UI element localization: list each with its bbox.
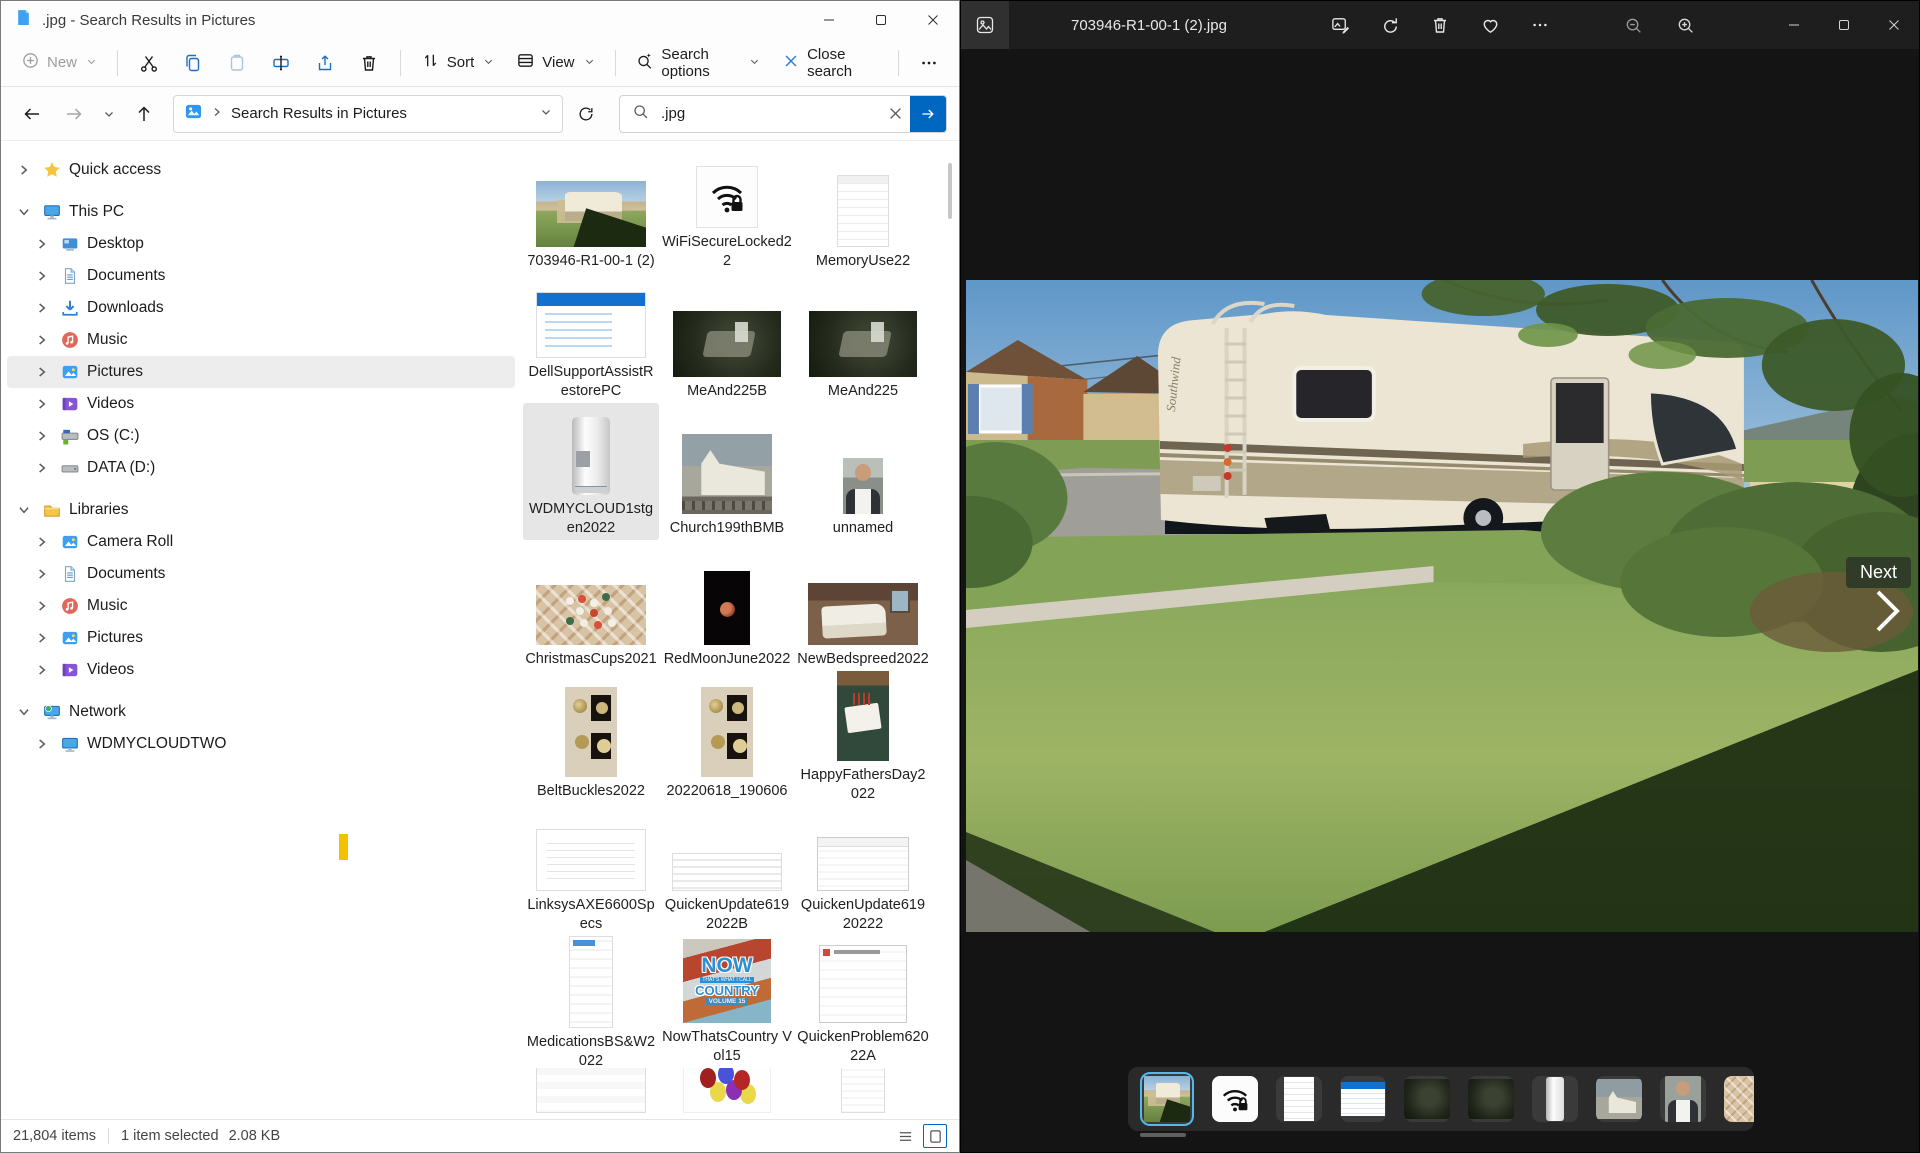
- file-tile[interactable]: 20220618_190606: [659, 671, 795, 803]
- next-tooltip: Next: [1846, 557, 1911, 588]
- sidebar-item-pictures[interactable]: Pictures: [7, 356, 515, 388]
- wifi-thumbnail: [696, 166, 758, 228]
- videos-icon: [59, 395, 81, 413]
- chevron-right-icon[interactable]: [31, 237, 53, 251]
- now-thumbnail: NOWTHAT'S WHAT I CALLCOUNTRYVOLUME 15: [683, 939, 771, 1023]
- file-tile[interactable]: QuickenUpdate61920222: [795, 803, 931, 936]
- photos-app-window: 703946-R1-00-1 (2).jpg: [960, 0, 1920, 1153]
- qrows-thumbnail: [672, 853, 782, 891]
- cups-thumbnail: [536, 585, 646, 645]
- filmstrip-thumbnail-doc[interactable]: [1276, 1076, 1322, 1122]
- delete-button[interactable]: [348, 44, 390, 82]
- drive-icon: [59, 459, 81, 477]
- file-tile-selected[interactable]: WDMYCLOUD1stgen2022: [523, 403, 659, 540]
- large-thumbnails-view-icon[interactable]: [923, 1124, 947, 1148]
- address-bar[interactable]: Search Results in Pictures: [173, 95, 563, 133]
- new-button[interactable]: New: [11, 44, 107, 82]
- file-list: 703946-R1-00-1 (2)WiFiSecureLocked22Memo…: [523, 147, 935, 1116]
- close-icon[interactable]: [907, 1, 959, 39]
- sidebar-item-pictures[interactable]: Pictures: [7, 622, 515, 654]
- moon-thumbnail: [704, 571, 750, 645]
- sidebar-item-label: This PC: [69, 203, 124, 221]
- videos-icon: [59, 661, 81, 679]
- wd-thumbnail: [572, 417, 610, 495]
- new-button-label: New: [47, 54, 77, 71]
- fathers-thumbnail: [837, 671, 889, 761]
- sidebar-item-network[interactable]: Network: [7, 696, 515, 728]
- back-icon[interactable]: [13, 95, 51, 133]
- clear-search-icon[interactable]: [880, 107, 910, 120]
- status-divider: [108, 1128, 109, 1144]
- file-name: WiFiSecureLocked22: [661, 233, 793, 271]
- file-name: MeAnd225: [797, 382, 929, 401]
- chevron-right-icon[interactable]: [31, 333, 53, 347]
- search-go-button[interactable]: [910, 95, 946, 133]
- filmstrip-thumbnail-dark[interactable]: [1468, 1076, 1514, 1122]
- items-count: 21,804 items: [13, 1128, 96, 1144]
- zoom-out-icon[interactable]: [1613, 5, 1653, 45]
- file-tile[interactable]: unnamed: [795, 403, 931, 540]
- toolbar-divider: [898, 50, 899, 76]
- yellow-caret-mark: [339, 834, 348, 860]
- sidebar-item-label: Videos: [87, 395, 134, 413]
- chevron-right-icon[interactable]: [13, 163, 35, 177]
- sidebar-item-label: Documents: [87, 267, 165, 285]
- driveos-icon: [59, 427, 81, 445]
- pictures-icon: [59, 629, 81, 647]
- file-tile[interactable]: ChristmasCups2021: [523, 540, 659, 671]
- file-name: NewBedspreed2022: [797, 650, 929, 669]
- receipt-thumbnail: [841, 1068, 885, 1113]
- church-thumbnail: [682, 434, 772, 514]
- rv-thumbnail: [536, 181, 646, 247]
- file-tile[interactable]: 703946-R1-00-1 (2): [523, 147, 659, 273]
- star-icon: [41, 161, 63, 179]
- up-icon[interactable]: [125, 95, 163, 133]
- file-name: QuickenUpdate61920222: [797, 896, 929, 934]
- file-tile[interactable]: WiFiSecureLocked22: [659, 147, 795, 273]
- sidebar-item-quick-access[interactable]: Quick access: [7, 154, 515, 186]
- explorer-command-bar: New Sort View Sea: [1, 39, 959, 87]
- sidebar-item-label: Music: [87, 597, 127, 615]
- photo-filename: 703946-R1-00-1 (2).jpg: [1071, 1, 1227, 49]
- man-thumbnail: [843, 458, 883, 514]
- sort-arrows-icon: [421, 51, 440, 74]
- chevron-down-icon: [483, 54, 494, 71]
- copy-button[interactable]: [172, 44, 214, 82]
- edit-image-icon[interactable]: [1320, 5, 1360, 45]
- pictures-icon: [59, 533, 81, 551]
- search-results-icon: [184, 102, 203, 126]
- sidebar-item-libraries[interactable]: Libraries: [7, 494, 515, 526]
- file-name: QuickenUpdate6192022B: [661, 896, 793, 934]
- delete-icon[interactable]: [1420, 5, 1460, 45]
- file-tile[interactable]: [795, 1068, 931, 1115]
- toolbar-divider: [117, 50, 118, 76]
- filmstrip-thumbnail-rv-selected[interactable]: [1140, 1072, 1194, 1126]
- chevron-right-icon[interactable]: [31, 269, 53, 283]
- file-grid-row: [523, 1068, 935, 1115]
- sidebar-item-music[interactable]: Music: [7, 324, 515, 356]
- downloads-icon: [59, 299, 81, 317]
- file-name: QuickenProblem62022A: [797, 1028, 929, 1066]
- sidebar-item-os-c-[interactable]: OS (C:): [7, 420, 515, 452]
- music-icon: [59, 597, 81, 615]
- sidebar-item-documents[interactable]: Documents: [7, 558, 515, 590]
- filmstrip-thumbnail-dell[interactable]: [1340, 1076, 1386, 1122]
- file-grid-row: WDMYCLOUD1stgen2022Church199thBMBunnamed: [523, 403, 935, 540]
- refresh-icon[interactable]: [567, 95, 605, 133]
- file-name: 20220618_190606: [661, 782, 793, 801]
- balloons-thumbnail: [683, 1068, 771, 1113]
- filmstrip[interactable]: [1128, 1067, 1754, 1131]
- file-name: ChristmasCups2021: [525, 650, 657, 669]
- favorite-heart-icon[interactable]: [1470, 5, 1510, 45]
- sidebar-item-videos[interactable]: Videos: [7, 388, 515, 420]
- sidebar-item-label: Camera Roll: [87, 533, 173, 551]
- file-tile[interactable]: NewBedspreed2022: [795, 540, 931, 671]
- file-tile[interactable]: HappyFathersDay2022: [795, 671, 931, 803]
- view-button-label: View: [542, 54, 574, 71]
- file-tile[interactable]: NOWTHAT'S WHAT I CALLCOUNTRYVOLUME 15Now…: [659, 936, 795, 1068]
- close-search-label: Close search: [807, 46, 878, 80]
- sidebar-item-label: Network: [69, 703, 126, 721]
- file-grid-row: DellSupportAssistRestorePCMeAnd225BMeAnd…: [523, 273, 935, 403]
- sidebar-item-music[interactable]: Music: [7, 590, 515, 622]
- dark-thumbnail: [673, 311, 781, 377]
- chevron-right-icon[interactable]: [31, 429, 53, 443]
- sidebar-item-camera-roll[interactable]: Camera Roll: [7, 526, 515, 558]
- sidebar-item-videos[interactable]: Videos: [7, 654, 515, 686]
- sidebar-item-label: Music: [87, 331, 127, 349]
- file-tile[interactable]: BeltBuckles2022: [523, 671, 659, 803]
- search-input[interactable]: [619, 95, 947, 133]
- toolbar-divider: [615, 50, 616, 76]
- network-icon: [41, 703, 63, 721]
- chevron-right-icon[interactable]: [31, 663, 53, 677]
- toolbar-divider: [400, 50, 401, 76]
- view-icon: [516, 51, 535, 74]
- file-explorer-window: .jpg - Search Results in Pictures New: [0, 0, 960, 1153]
- documents-icon: [59, 267, 81, 285]
- chevron-right-icon[interactable]: [31, 365, 53, 379]
- chevron-right-icon[interactable]: [31, 535, 53, 549]
- paste-button[interactable]: [216, 44, 258, 82]
- zoom-in-icon[interactable]: [1665, 5, 1705, 45]
- chevron-down-icon: [749, 54, 760, 71]
- sidebar-item-label: Pictures: [87, 363, 143, 381]
- file-name: MemoryUse22: [797, 252, 929, 271]
- filmstrip-scrollbar[interactable]: [1140, 1133, 1186, 1137]
- file-name: NowThatsCountry Vol15: [661, 1028, 793, 1066]
- forward-icon[interactable]: [55, 95, 93, 133]
- chevron-right-icon[interactable]: [31, 631, 53, 645]
- view-button[interactable]: View: [506, 44, 604, 82]
- status-bar: 21,804 items 1 item selected 2.08 KB: [1, 1119, 959, 1152]
- qdlg-thumbnail: [817, 837, 909, 891]
- file-tile[interactable]: MemoryUse22: [795, 147, 931, 273]
- filmstrip-thumbnail-dark[interactable]: [1404, 1076, 1450, 1122]
- dark-thumbnail: [809, 311, 917, 377]
- sort-button[interactable]: Sort: [411, 44, 505, 82]
- chevron-right-icon[interactable]: [31, 737, 53, 751]
- sidebar-item-label: Libraries: [69, 501, 128, 519]
- libraries-icon: [41, 501, 63, 519]
- sidebar-item-label: Downloads: [87, 299, 164, 317]
- documents-icon: [59, 565, 81, 583]
- chevron-down-icon: [86, 54, 97, 71]
- address-dropdown-chevron-icon[interactable]: [540, 105, 552, 123]
- file-name: BeltBuckles2022: [525, 782, 657, 801]
- file-tile[interactable]: MeAnd225: [795, 273, 931, 403]
- sidebar-item-label: OS (C:): [87, 427, 140, 445]
- selection-count: 1 item selected: [121, 1128, 219, 1144]
- file-tile[interactable]: QuickenProblem62022A: [795, 936, 931, 1068]
- file-tile[interactable]: MedicationsBS&W2022: [523, 936, 659, 1068]
- qprob-thumbnail: [819, 945, 907, 1023]
- photos-app-icon: [961, 1, 1009, 49]
- chevron-down-icon[interactable]: [13, 705, 35, 719]
- filmstrip-thumbnail-church[interactable]: [1596, 1076, 1642, 1122]
- file-tile[interactable]: MeAnd225B: [659, 273, 795, 403]
- file-tile[interactable]: RedMoonJune2022: [659, 540, 795, 671]
- file-tile[interactable]: QuickenUpdate6192022B: [659, 803, 795, 936]
- buckles-thumbnail: [565, 687, 617, 777]
- minimize-icon[interactable]: [1769, 1, 1819, 49]
- jpg-file-icon: [15, 9, 32, 31]
- file-grid-row: BeltBuckles202220220618_190606HappyFathe…: [523, 671, 935, 803]
- sidebar-item-label: Videos: [87, 661, 134, 679]
- chevron-right-icon[interactable]: [31, 567, 53, 581]
- recent-locations-chevron-icon[interactable]: [97, 95, 121, 133]
- file-name: unnamed: [797, 519, 929, 538]
- dell-thumbnail: [536, 292, 646, 358]
- file-name: HappyFathersDay2022: [797, 766, 929, 801]
- file-grid-row: LinksysAXE6600SpecsQuickenUpdate6192022B…: [523, 803, 935, 936]
- file-grid-row: MedicationsBS&W2022NOWTHAT'S WHAT I CALL…: [523, 936, 935, 1068]
- rename-button[interactable]: [260, 44, 302, 82]
- maximize-icon[interactable]: [1819, 1, 1869, 49]
- file-tile[interactable]: DellSupportAssistRestorePC: [523, 273, 659, 403]
- dates-thumbnail: [536, 1068, 646, 1113]
- file-name: DellSupportAssistRestorePC: [525, 363, 657, 401]
- details-view-icon[interactable]: [893, 1124, 917, 1148]
- sidebar-item-label: Documents: [87, 565, 165, 583]
- meds-thumbnail: [569, 936, 613, 1028]
- sort-button-label: Sort: [447, 54, 475, 71]
- chevron-right-icon[interactable]: [31, 461, 53, 475]
- file-tile[interactable]: [523, 1068, 659, 1115]
- next-icon[interactable]: [1875, 589, 1901, 638]
- file-tile[interactable]: Church199thBMB: [659, 403, 795, 540]
- explorer-titlebar[interactable]: .jpg - Search Results in Pictures: [1, 1, 959, 39]
- doc-thumbnail: [837, 175, 889, 247]
- sidebar-item-wdmycloudtwo[interactable]: WDMYCLOUDTWO: [7, 728, 515, 760]
- file-name: RedMoonJune2022: [661, 650, 793, 669]
- cut-button[interactable]: [128, 44, 170, 82]
- linksys-thumbnail: [536, 829, 646, 891]
- bed-thumbnail: [808, 583, 918, 645]
- chevron-down-icon[interactable]: [13, 205, 35, 219]
- explorer-navigation-bar: Search Results in Pictures: [1, 87, 959, 141]
- file-grid-row: 703946-R1-00-1 (2)WiFiSecureLocked22Memo…: [523, 147, 935, 273]
- photos-titlebar[interactable]: 703946-R1-00-1 (2).jpg: [961, 1, 1919, 49]
- filmstrip-thumbnail-man[interactable]: [1660, 1076, 1706, 1122]
- maximize-icon[interactable]: [855, 1, 907, 39]
- file-tile[interactable]: [659, 1068, 795, 1115]
- file-name: LinksysAXE6600Specs: [525, 896, 657, 934]
- sidebar-item-label: DATA (D:): [87, 459, 155, 477]
- desktop-icon: [59, 235, 81, 253]
- file-name: MeAnd225B: [661, 382, 793, 401]
- search-options-icon: [635, 51, 654, 74]
- search-options-button[interactable]: Search options: [625, 44, 770, 82]
- more-options-icon[interactable]: [1520, 5, 1560, 45]
- selection-size: 2.08 KB: [229, 1128, 281, 1144]
- sidebar-item-this-pc[interactable]: This PC: [7, 196, 515, 228]
- navigation-pane: Quick accessThis PCDesktopDocumentsDownl…: [1, 142, 521, 1118]
- filmstrip-thumbnail-wifi[interactable]: [1212, 1076, 1258, 1122]
- close-search-button[interactable]: Close search: [772, 44, 888, 82]
- search-icon: [632, 103, 649, 125]
- file-list-scrollbar[interactable]: [948, 163, 952, 219]
- sidebar-item-documents[interactable]: Documents: [7, 260, 515, 292]
- plus-circle-icon: [21, 51, 40, 74]
- sidebar-item-label: Desktop: [87, 235, 144, 253]
- breadcrumb[interactable]: Search Results in Pictures: [231, 105, 532, 122]
- sidebar-item-desktop[interactable]: Desktop: [7, 228, 515, 260]
- netpc-icon: [59, 735, 81, 753]
- chevron-right-icon[interactable]: [31, 599, 53, 613]
- search-options-label: Search options: [661, 46, 740, 80]
- close-icon[interactable]: [1869, 1, 1919, 49]
- file-name: Church199thBMB: [661, 519, 793, 538]
- window-title: .jpg - Search Results in Pictures: [42, 12, 255, 29]
- filmstrip-thumbnail-cups[interactable]: [1724, 1076, 1754, 1122]
- see-more-button[interactable]: [909, 44, 949, 82]
- chevron-right-icon[interactable]: [31, 301, 53, 315]
- share-button[interactable]: [304, 44, 346, 82]
- buckles-thumbnail: [701, 687, 753, 777]
- chevron-down-icon[interactable]: [13, 503, 35, 517]
- breadcrumb-chevron-icon: [211, 105, 223, 123]
- photo-view-rv-motorhome: Southwind: [966, 280, 1918, 932]
- chevron-down-icon: [584, 54, 595, 71]
- sidebar-item-label: Pictures: [87, 629, 143, 647]
- file-name: MedicationsBS&W2022: [525, 1033, 657, 1066]
- sidebar-item-label: Quick access: [69, 161, 161, 179]
- desktop: .jpg - Search Results in Pictures New: [0, 0, 1920, 1153]
- sidebar-item-downloads[interactable]: Downloads: [7, 292, 515, 324]
- sidebar-item-label: WDMYCLOUDTWO: [87, 735, 227, 753]
- close-search-x-icon: [782, 52, 800, 74]
- file-name: 703946-R1-00-1 (2): [525, 252, 657, 271]
- pictures-icon: [59, 363, 81, 381]
- rotate-icon[interactable]: [1370, 5, 1410, 45]
- music-icon: [59, 331, 81, 349]
- chevron-right-icon[interactable]: [31, 397, 53, 411]
- minimize-icon[interactable]: [803, 1, 855, 39]
- search-query-field[interactable]: [659, 104, 880, 123]
- file-tile[interactable]: LinksysAXE6600Specs: [523, 803, 659, 936]
- pc-icon: [41, 203, 63, 221]
- file-name: WDMYCLOUD1stgen2022: [525, 500, 657, 538]
- sidebar-item-data-d-[interactable]: DATA (D:): [7, 452, 515, 484]
- filmstrip-thumbnail-wd[interactable]: [1532, 1076, 1578, 1122]
- file-grid-row: ChristmasCups2021RedMoonJune2022NewBedsp…: [523, 540, 935, 671]
